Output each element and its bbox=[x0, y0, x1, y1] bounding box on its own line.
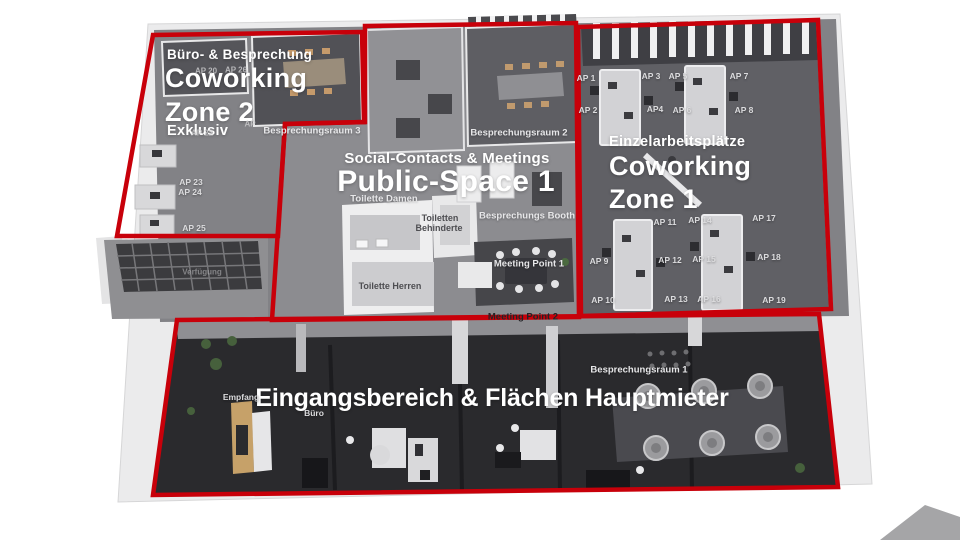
zone1-title-line2: Zone 1 bbox=[609, 184, 698, 215]
zone2-title-line1: Coworking bbox=[165, 63, 307, 94]
public-space-title: Public-Space 1 bbox=[337, 165, 555, 199]
floor-plan-render bbox=[0, 0, 960, 540]
storage-room bbox=[104, 237, 268, 319]
slab-corner bbox=[880, 505, 960, 540]
zone1-title-line1: Coworking bbox=[609, 151, 751, 182]
zone2-category: Büro- & Besprechung bbox=[167, 47, 312, 62]
floor-plan: Büro- & Besprechung Coworking Zone 2 Exk… bbox=[0, 0, 960, 540]
main-tenant-title: Eingangsbereich & Flächen Hauptmieter bbox=[255, 384, 728, 413]
zone1-category: Einzelarbeitsplätze bbox=[609, 134, 745, 150]
zone2-subtitle: Exklusiv bbox=[167, 123, 228, 139]
